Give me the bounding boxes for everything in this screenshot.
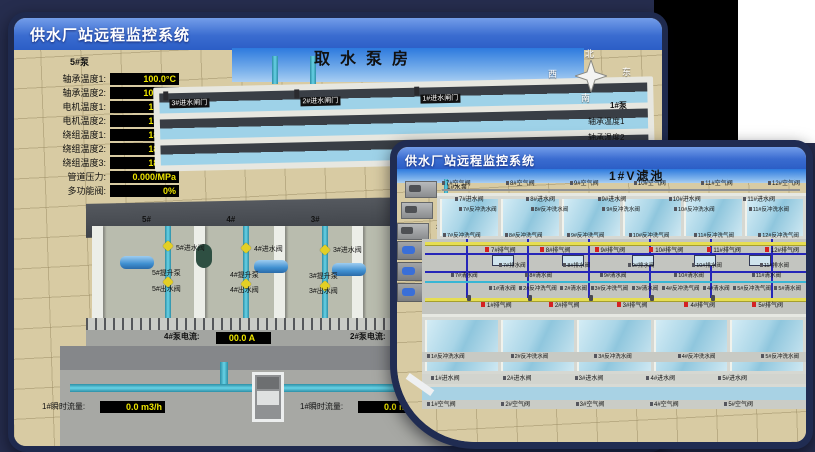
compass-west: 西 [548, 70, 557, 79]
valve-glyph[interactable] [528, 295, 532, 301]
telemetry-label: 电机温度1: [22, 103, 106, 112]
exhaust-valve-label[interactable]: 9#排气阀 [595, 247, 626, 254]
inlet-valve-label[interactable]: 5#进水阀 [718, 376, 747, 382]
water-pump-unit[interactable] [405, 181, 437, 198]
current-value: 00.0 A [216, 332, 271, 344]
gate-valve-icon[interactable] [294, 89, 299, 98]
air-valve-label[interactable]: 1#空气阀 [427, 402, 456, 408]
clean-water-line [466, 239, 468, 301]
inlet-valve-label[interactable]: 11#进水阀 [743, 197, 775, 203]
drain-valve-label[interactable]: 11#排水阀 [760, 263, 789, 270]
mid-valve-label[interactable]: 1#清水阀 [489, 286, 516, 293]
air-valve-row-bottom: 1#空气阀 2#空气阀 3#空气阀 4#空气阀 5#空气阀 [427, 402, 753, 408]
inlet-valve-label[interactable]: 1#进水阀 [431, 376, 460, 382]
water-pump-unit[interactable] [397, 223, 429, 240]
pump1-panel-header: 1#泵 [610, 102, 627, 110]
valve-label: 3#进水阀 [333, 247, 362, 254]
intake-channel [160, 108, 648, 139]
backwash-air-valve-label[interactable]: 10#反冲洗气阀 [629, 233, 670, 240]
mid-valve-label[interactable]: 5#反冲洗气阀 [733, 286, 771, 293]
gate-label: 3#进水闸门 [169, 98, 209, 108]
air-valve-label[interactable]: 4#空气阀 [650, 402, 679, 408]
air-valve-label[interactable]: 8#空气阀 [506, 181, 535, 187]
air-valve-label[interactable]: 2#空气阀 [501, 402, 530, 408]
exhaust-valve-label[interactable]: 1#排气阀 [481, 302, 512, 309]
exhaust-valve-label[interactable]: 12#排气阀 [765, 247, 799, 254]
telemetry-label: 绕组温度2: [22, 145, 106, 154]
backwash-valve-label[interactable]: 9#反冲洗水阀 [602, 207, 640, 214]
backwash-valve-label[interactable]: 11#反冲洗水阀 [749, 207, 789, 214]
valve-label: 4#出水阀 [230, 287, 259, 294]
valve-label: 4#提升泵 [230, 272, 259, 279]
air-valve-label[interactable]: 3#空气阀 [576, 402, 605, 408]
backwash-valve-row-bottom: 1#反冲洗水阀 2#反冲洗水阀 3#反冲洗水阀 4#反冲洗水阀 5#反冲洗水阀 [427, 354, 799, 361]
exhaust-valve-label[interactable]: 3#排气阀 [617, 302, 648, 309]
air-main-top [425, 242, 806, 246]
vent-pipe [272, 56, 278, 84]
drain-valve-label[interactable]: 8#排水阀 [563, 263, 590, 270]
filter-cell [623, 199, 681, 236]
backwash-valve-label[interactable]: 2#反冲洗水阀 [511, 354, 549, 361]
water-pump-unit[interactable] [401, 202, 433, 219]
filter-cell [730, 320, 803, 371]
clean-valve-row-top: 7#清水阀 8#清水阀 9#清水阀 10#清水阀 11#清水阀 [451, 273, 781, 280]
exhaust-valve-label[interactable]: 4#排气阀 [684, 302, 715, 309]
air-header-pipe [442, 189, 800, 191]
air-valve-label[interactable]: 12#空气阀 [768, 181, 800, 187]
pump-body[interactable] [120, 256, 154, 269]
valve-label: 4#进水阀 [254, 246, 283, 253]
backwash-air-valve-label[interactable]: 7#反冲洗气阀 [443, 233, 481, 240]
inlet-valve-label[interactable]: 10#进水阀 [669, 197, 701, 203]
drain-valve-label[interactable]: 7#排水阀 [499, 263, 526, 270]
pillar [92, 226, 103, 320]
filter-cell [425, 320, 498, 371]
filter-cell [684, 199, 742, 236]
air-valve-label[interactable]: 11#空气阀 [701, 181, 733, 187]
drain-valve-row: 7#排水阀 8#排水阀 9#排水阀 10#排水阀 11#排水阀 [499, 263, 789, 270]
backwash-valve-label[interactable]: 5#反冲洗水阀 [761, 354, 799, 361]
inlet-valve-row-bottom: 1#进水阀 2#进水阀 3#进水阀 4#进水阀 5#进水阀 [431, 376, 747, 382]
exhaust-valve-row-top: 7#排气阀 8#排气阀 9#排气阀 10#排气阀 11#排气阀 12#排气阀 [485, 247, 799, 254]
backwash-air-valve-label[interactable]: 8#反冲洗气阀 [505, 233, 543, 240]
backwash-valve-label[interactable]: 4#反冲洗水阀 [678, 354, 716, 361]
gate-valve-icon[interactable] [163, 91, 168, 100]
bay-label: 3# [311, 216, 320, 224]
pillar [194, 226, 205, 320]
valve-glyph[interactable] [650, 295, 654, 301]
telemetry-value: 0.000/MPa [110, 171, 179, 183]
inlet-valve-label[interactable]: 9#进水阀 [598, 197, 627, 203]
telemetry-label: 轴承温度2: [22, 89, 106, 98]
exhaust-valve-label[interactable]: 5#排气阀 [752, 302, 783, 309]
telemetry-label: 绕组温度1: [22, 131, 106, 140]
telemetry-label: 绕组温度3: [22, 159, 106, 168]
flow-label: 1#瞬时流量: [300, 403, 343, 411]
inlet-valve-label[interactable]: 8#进水阀 [526, 197, 555, 203]
telemetry-value: 100.0°C [110, 73, 179, 85]
telemetry-label: 轴承温度1 [588, 118, 624, 126]
filter-cell [745, 199, 803, 236]
bay-label: 4# [226, 216, 235, 224]
backwash-air-valve-label[interactable]: 11#反冲洗气阀 [694, 233, 734, 240]
exhaust-valve-label[interactable]: 2#排气阀 [549, 302, 580, 309]
mid-valve-label[interactable]: 2#反冲洗气阀 [519, 286, 557, 293]
filter-cell [562, 199, 620, 236]
pillar [274, 226, 285, 320]
current-label: 4#泵电流: [164, 333, 200, 341]
mid-valve-label[interactable]: 4#反冲洗气阀 [662, 286, 700, 293]
current-label: 2#泵电流: [350, 333, 386, 341]
backwash-valve-label[interactable]: 8#反冲洗水阀 [531, 207, 569, 214]
valve-label: 5#进水阀 [176, 245, 205, 252]
inlet-valve-label[interactable]: 4#进水阀 [646, 376, 675, 382]
inlet-valve-row-top: 7#进水阀 8#进水阀 9#进水阀 10#进水阀 11#进水阀 [455, 197, 775, 203]
bay-labels: 5# 4# 3# 2# [142, 216, 404, 224]
clean-valve-label[interactable]: 8#清水阀 [525, 273, 552, 280]
backwash-valve-label[interactable]: 1#反冲洗水阀 [427, 354, 465, 361]
flow-label: 1#瞬时流量: [42, 403, 85, 411]
telemetry-label: 轴承温度1: [22, 75, 106, 84]
backwash-air-row-top: 7#反冲洗气阀 8#反冲洗气阀 9#反冲洗气阀 10#反冲洗气阀 11#反冲洗气… [443, 233, 799, 240]
telemetry-label: 电机温度2: [22, 117, 106, 126]
air-valve-label[interactable]: 9#空气阀 [570, 181, 599, 187]
clean-valve-label[interactable]: 11#清水阀 [752, 273, 781, 280]
backwash-main [425, 281, 806, 283]
compass-star-icon [575, 60, 607, 92]
valve-glyph[interactable] [467, 295, 471, 301]
valve-label: 5#出水阀 [152, 286, 181, 293]
window-v-filter: 供水厂站远程监控系统 1#V滤池 1#水泵 2#水泵 3#水泵 1#风机 2#风… [390, 140, 813, 449]
back-window-titlebar[interactable]: 供水厂站远程监控系统 [14, 18, 662, 50]
valve-glyph[interactable] [589, 295, 593, 301]
front-window-titlebar[interactable]: 供水厂站远程监控系统 [397, 147, 806, 169]
exhaust-valve-row-bottom: 1#排气阀 2#排气阀 3#排气阀 4#排气阀 5#排气阀 [481, 302, 783, 309]
air-valve-row-top: 7#空气阀 8#空气阀 9#空气阀 10#空气阀 11#空气阀 12#空气阀 [442, 181, 800, 187]
background-white-panel [738, 0, 815, 143]
mid-valve-label[interactable]: 2#清水阀 [560, 286, 587, 293]
inlet-valve-label[interactable]: 3#进水阀 [575, 376, 604, 382]
bay-label: 5# [142, 216, 151, 224]
backwash-air-valve-label[interactable]: 12#反冲洗气阀 [758, 233, 799, 240]
telemetry-label: 管道压力: [22, 173, 106, 182]
compass-east: 东 [622, 68, 631, 77]
inlet-valve-label[interactable]: 7#进水阀 [455, 197, 484, 203]
front-window-scene: 1#V滤池 1#水泵 2#水泵 3#水泵 1#风机 2#风机 3#风机 6#反冲… [397, 169, 806, 442]
telemetry-label: 多功能阀: [22, 187, 106, 196]
pump-body[interactable] [254, 260, 288, 273]
backwash-valve-row-top: 7#反冲洗水阀 8#反冲洗水阀 9#反冲洗水阀 10#反冲洗水阀 11#反冲洗水… [459, 207, 789, 214]
mid-valve-label[interactable]: 3#清水阀 [632, 286, 659, 293]
exhaust-valve-label[interactable]: 8#排气阀 [540, 247, 571, 254]
mid-valve-label[interactable]: 4#清水阀 [703, 286, 730, 293]
backwash-valve-label[interactable]: 10#反冲洗水阀 [674, 207, 715, 214]
mid-valve-label[interactable]: 3#反冲洗气阀 [591, 286, 629, 293]
valve-label: 3#出水阀 [309, 288, 338, 295]
air-valve-label[interactable]: 5#空气阀 [724, 402, 753, 408]
gate-label: 2#进水闸门 [300, 96, 340, 106]
gate-valve-icon[interactable] [414, 87, 419, 96]
clean-valve-label[interactable]: 10#清水阀 [674, 273, 704, 280]
compass-north: 北 [585, 50, 594, 59]
gate-label: 1#进水闸门 [420, 94, 460, 104]
valve-label: 3#提升泵 [309, 273, 338, 280]
backwash-valve-label[interactable]: 3#反冲洗水阀 [594, 354, 632, 361]
exhaust-valve-label[interactable]: 10#排气阀 [649, 247, 683, 254]
compass-south: 南 [581, 94, 590, 103]
exhaust-valve-label[interactable]: 11#排气阀 [707, 247, 741, 254]
backwash-valve-label[interactable]: 7#反冲洗水阀 [459, 207, 497, 214]
inlet-valve-label[interactable]: 2#进水阀 [503, 376, 532, 382]
filter-cell [577, 320, 650, 371]
clean-valve-label[interactable]: 9#清水阀 [600, 273, 627, 280]
exhaust-valve-label[interactable]: 7#排气阀 [485, 247, 516, 254]
clean-valve-label[interactable]: 7#清水阀 [451, 273, 478, 280]
drain-valve-label[interactable]: 9#排水阀 [628, 263, 655, 270]
filter-cell [654, 320, 727, 371]
filter-cell [440, 199, 498, 236]
pump5-panel-header: 5#泵 [70, 58, 89, 67]
flow-value: 0.0 m3/h [100, 401, 165, 413]
valve-glyph[interactable] [711, 295, 715, 301]
flow-meter[interactable] [252, 372, 284, 422]
air-valve-label[interactable]: 10#空气阀 [634, 181, 666, 187]
drain-valve-label[interactable]: 10#排水阀 [692, 263, 722, 270]
scene-title: 取水泵房 [314, 52, 418, 68]
valve-label: 5#提升泵 [152, 270, 181, 277]
backwash-air-valve-label[interactable]: 9#反冲洗气阀 [567, 233, 605, 240]
telemetry-value: 0% [110, 185, 179, 197]
filter-cell [501, 320, 574, 371]
scada-desktop: { "back_window": { "title_bar": "供水厂站远程监… [0, 0, 815, 420]
mid-valve-label[interactable]: 5#清水阀 [774, 286, 801, 293]
filter-cells-bottom [422, 314, 806, 374]
filter-cell [501, 199, 559, 236]
air-valve-label[interactable]: 7#空气阀 [442, 181, 471, 187]
mid-valve-row: 1#清水阀 2#反冲洗气阀 2#清水阀 3#反冲洗气阀 3#清水阀 4#反冲洗气… [489, 286, 801, 293]
